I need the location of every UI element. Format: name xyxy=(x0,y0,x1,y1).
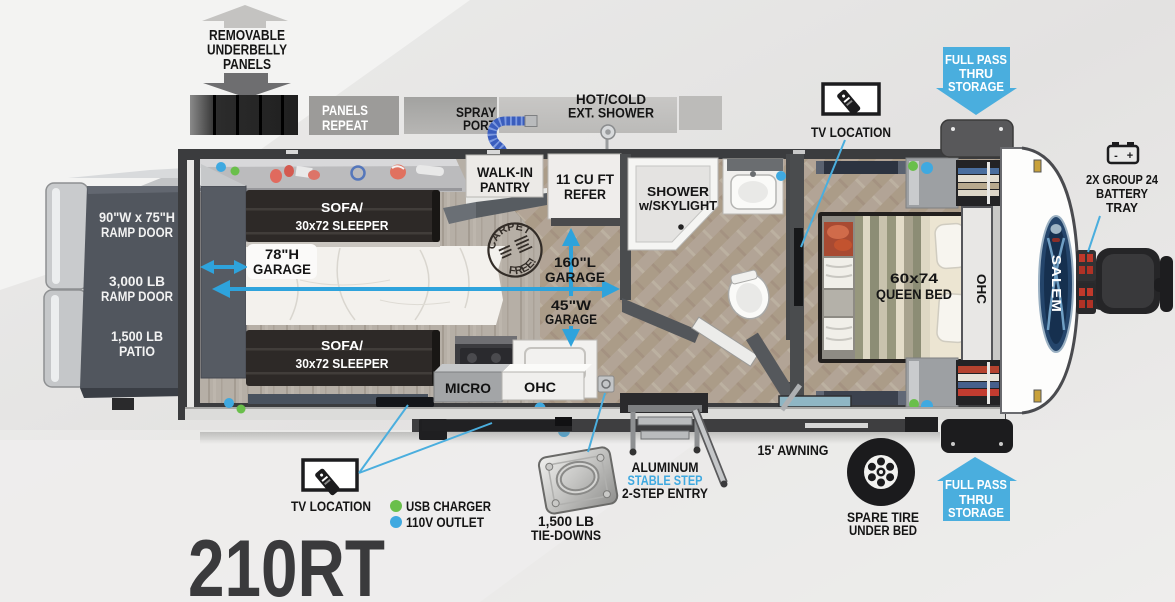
svg-text:60x74: 60x74 xyxy=(890,271,939,286)
svg-text:STORAGE: STORAGE xyxy=(948,506,1004,520)
svg-text:USB CHARGER: USB CHARGER xyxy=(406,499,491,514)
svg-text:PANELS: PANELS xyxy=(223,57,271,73)
svg-text:TIE-DOWNS: TIE-DOWNS xyxy=(531,528,601,543)
svg-text:2-STEP ENTRY: 2-STEP ENTRY xyxy=(622,486,708,501)
svg-text:SALEM: SALEM xyxy=(1049,255,1064,313)
svg-text:GARAGE: GARAGE xyxy=(253,262,311,277)
svg-text:30x72 SLEEPER: 30x72 SLEEPER xyxy=(296,218,390,233)
svg-text:BATTERY: BATTERY xyxy=(1096,186,1148,201)
svg-text:FULL PASS: FULL PASS xyxy=(945,53,1007,67)
svg-text:OHC: OHC xyxy=(524,379,556,395)
svg-text:WALK-IN: WALK-IN xyxy=(477,165,533,180)
svg-text:3,000 LB: 3,000 LB xyxy=(109,274,165,289)
svg-text:160"L: 160"L xyxy=(554,255,596,270)
svg-text:REFER: REFER xyxy=(564,187,606,202)
svg-text:1,500 LB: 1,500 LB xyxy=(538,514,594,529)
svg-text:PANELS: PANELS xyxy=(322,102,368,118)
svg-text:90"W x 75"H: 90"W x 75"H xyxy=(99,210,175,225)
svg-text:UNDER BED: UNDER BED xyxy=(849,523,917,538)
svg-text:EXT. SHOWER: EXT. SHOWER xyxy=(568,106,654,121)
svg-text:w/SKYLIGHT: w/SKYLIGHT xyxy=(638,198,717,213)
svg-text:OHC: OHC xyxy=(974,274,989,305)
svg-text:15' AWNING: 15' AWNING xyxy=(758,443,829,458)
svg-text:STORAGE: STORAGE xyxy=(948,80,1004,94)
svg-text:PANTRY: PANTRY xyxy=(480,180,530,195)
svg-text:FULL PASS: FULL PASS xyxy=(945,478,1007,492)
svg-text:MICRO: MICRO xyxy=(445,380,491,396)
svg-text:210RT: 210RT xyxy=(188,524,385,602)
svg-text:TV LOCATION: TV LOCATION xyxy=(291,499,371,514)
svg-text:45"W: 45"W xyxy=(551,298,591,313)
svg-text:TV LOCATION: TV LOCATION xyxy=(811,125,891,140)
svg-text:GARAGE: GARAGE xyxy=(545,312,597,327)
svg-text:RAMP DOOR: RAMP DOOR xyxy=(101,225,173,240)
svg-text:SOFA/: SOFA/ xyxy=(321,338,363,353)
svg-text:TRAY: TRAY xyxy=(1106,200,1138,215)
svg-text:THRU: THRU xyxy=(959,493,993,507)
svg-text:REPEAT: REPEAT xyxy=(322,117,368,133)
svg-text:11 CU FT: 11 CU FT xyxy=(556,172,615,187)
svg-text:1,500 LB: 1,500 LB xyxy=(111,329,163,344)
svg-text:THRU: THRU xyxy=(959,67,993,81)
svg-text:2X GROUP 24: 2X GROUP 24 xyxy=(1086,172,1159,187)
svg-text:QUEEN BED: QUEEN BED xyxy=(876,287,952,302)
svg-text:SOFA/: SOFA/ xyxy=(321,200,363,215)
svg-text:GARAGE: GARAGE xyxy=(545,270,605,285)
svg-text:PATIO: PATIO xyxy=(119,344,155,359)
svg-text:30x72 SLEEPER: 30x72 SLEEPER xyxy=(296,356,390,371)
svg-text:+: + xyxy=(1127,150,1133,162)
svg-text:SHOWER: SHOWER xyxy=(647,184,710,199)
svg-text:-: - xyxy=(1114,150,1118,162)
svg-text:RAMP DOOR: RAMP DOOR xyxy=(101,289,173,304)
svg-text:110V OUTLET: 110V OUTLET xyxy=(406,515,485,530)
svg-text:78"H: 78"H xyxy=(265,247,299,262)
